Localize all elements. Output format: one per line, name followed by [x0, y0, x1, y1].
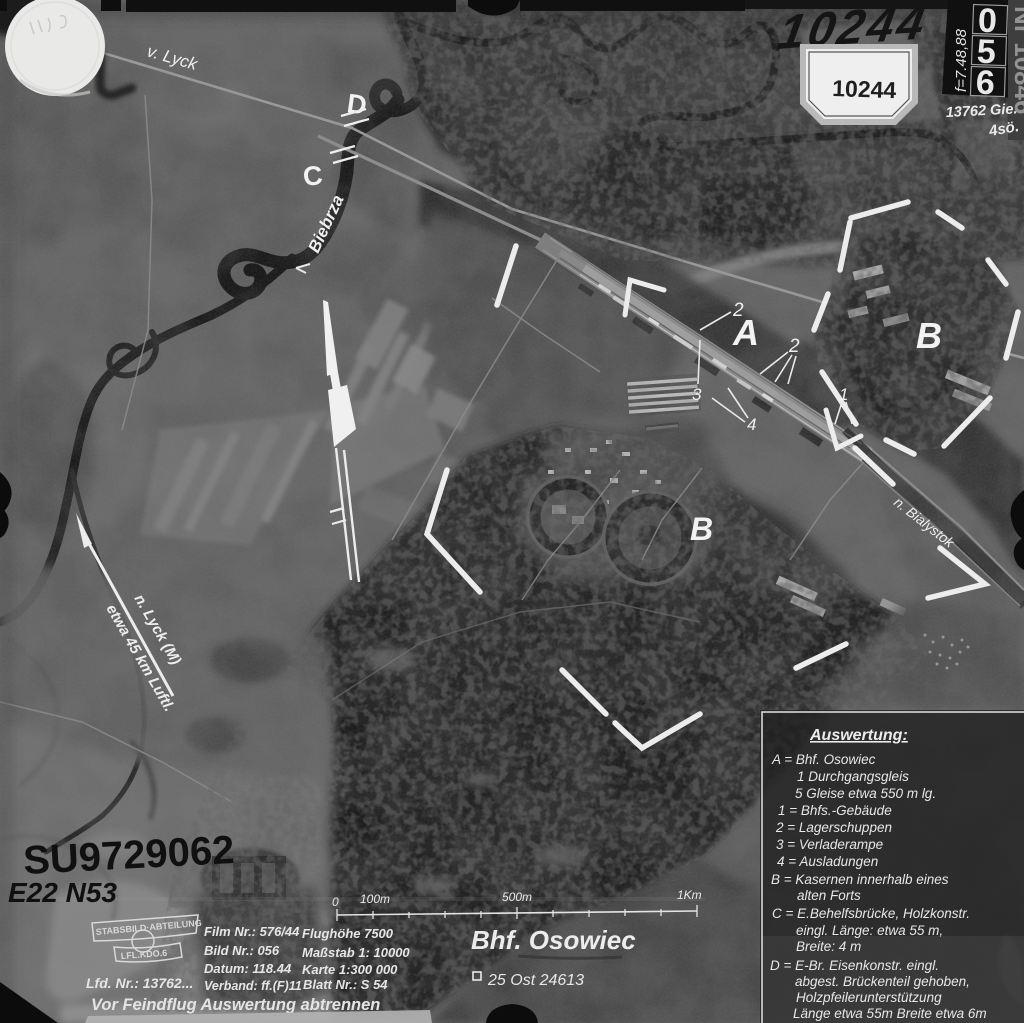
svg-text:5 Gleise etwa 550 m lg.: 5 Gleise etwa 550 m lg. — [795, 786, 936, 801]
svg-text:1Km: 1Km — [677, 888, 702, 902]
svg-text:Datum: 118.44: Datum: 118.44 — [204, 961, 292, 976]
svg-text:Vor Feindflug Auswertung abtre: Vor Feindflug Auswertung abtrennen — [91, 996, 380, 1014]
svg-text:4 = Ausladungen: 4 = Ausladungen — [777, 854, 878, 869]
svg-text:C = E.Behelfsbrücke, Holzkon: C = E.Behelfsbrücke, Holzkonstr. — [772, 906, 970, 921]
svg-text:6: 6 — [975, 64, 995, 103]
svg-text:D = E-Br. Eisenkonstr. eing: D = E-Br. Eisenkonstr. eingl. — [770, 958, 939, 973]
svg-text:f=7.48,88: f=7.48,88 — [953, 28, 970, 92]
svg-text:Flughöhe 7500: Flughöhe 7500 — [302, 926, 394, 941]
svg-text:abgest. Brückenteil gehoben,: abgest. Brückenteil gehoben, — [795, 974, 970, 989]
svg-text:A = Bhf. Osowiec: A = Bhf. Osowiec — [771, 752, 876, 767]
svg-text:1: 1 — [839, 385, 848, 404]
svg-text:B: B — [916, 315, 942, 356]
svg-text:E22 N53: E22 N53 — [8, 877, 117, 908]
svg-text:100m: 100m — [360, 892, 390, 906]
svg-text:500m: 500m — [502, 890, 532, 904]
svg-text:Breite: 4 m: Breite: 4 m — [796, 939, 861, 954]
svg-text:4: 4 — [747, 415, 756, 434]
svg-text:25 Ost 24613: 25 Ost 24613 — [487, 972, 584, 989]
svg-text:D: D — [345, 88, 368, 120]
svg-text:0: 0 — [332, 895, 339, 909]
svg-text:Blatt Nr.: S 54: Blatt Nr.: S 54 — [303, 977, 388, 992]
svg-text:Bild Nr.: 056: Bild Nr.: 056 — [204, 943, 280, 958]
svg-text:Karte 1:300 000: Karte 1:300 000 — [302, 962, 398, 977]
svg-text:Holzpfeilerunterstützung: Holzpfeilerunterstützung — [796, 990, 942, 1005]
svg-text:2: 2 — [788, 336, 800, 357]
svg-text:C: C — [301, 160, 324, 192]
svg-text:Länge etwa 55m Breite etwa 6m: Länge etwa 55m Breite etwa 6m — [793, 1006, 987, 1021]
svg-text:10244: 10244 — [832, 75, 897, 103]
svg-text:2 = Lagerschuppen: 2 = Lagerschuppen — [775, 820, 892, 835]
svg-text:Maßstab 1: 10000: Maßstab 1: 10000 — [302, 945, 410, 960]
svg-text:B = Kasernen innerhalb ein: B = Kasernen innerhalb eines — [771, 872, 949, 887]
svg-text:eingl. Länge: etwa 55 m,: eingl. Länge: etwa 55 m, — [796, 923, 943, 938]
svg-text:B: B — [690, 511, 713, 547]
svg-text:alten Forts: alten Forts — [797, 888, 861, 903]
svg-text:1 = Bhfs.-Gebäude: 1 = Bhfs.-Gebäude — [778, 803, 892, 818]
svg-text:Film Nr.: 576/44: Film Nr.: 576/44 — [204, 924, 300, 939]
svg-text:3 = Verladerampe: 3 = Verladerampe — [776, 837, 883, 852]
svg-text:Nr 10846: Nr 10846 — [1009, 6, 1024, 114]
svg-text:Verband: ff.(F)11: Verband: ff.(F)11 — [204, 979, 302, 993]
svg-text:2: 2 — [732, 300, 744, 321]
svg-text:3: 3 — [692, 385, 702, 404]
svg-text:Auswertung:: Auswertung: — [809, 727, 908, 744]
svg-text:Lfd. Nr.: 13762...: Lfd. Nr.: 13762... — [86, 975, 193, 991]
svg-text:Bhf. Osowiec: Bhf. Osowiec — [471, 925, 636, 955]
svg-text:1 Durchgangsgleis: 1 Durchgangsgleis — [797, 769, 909, 784]
